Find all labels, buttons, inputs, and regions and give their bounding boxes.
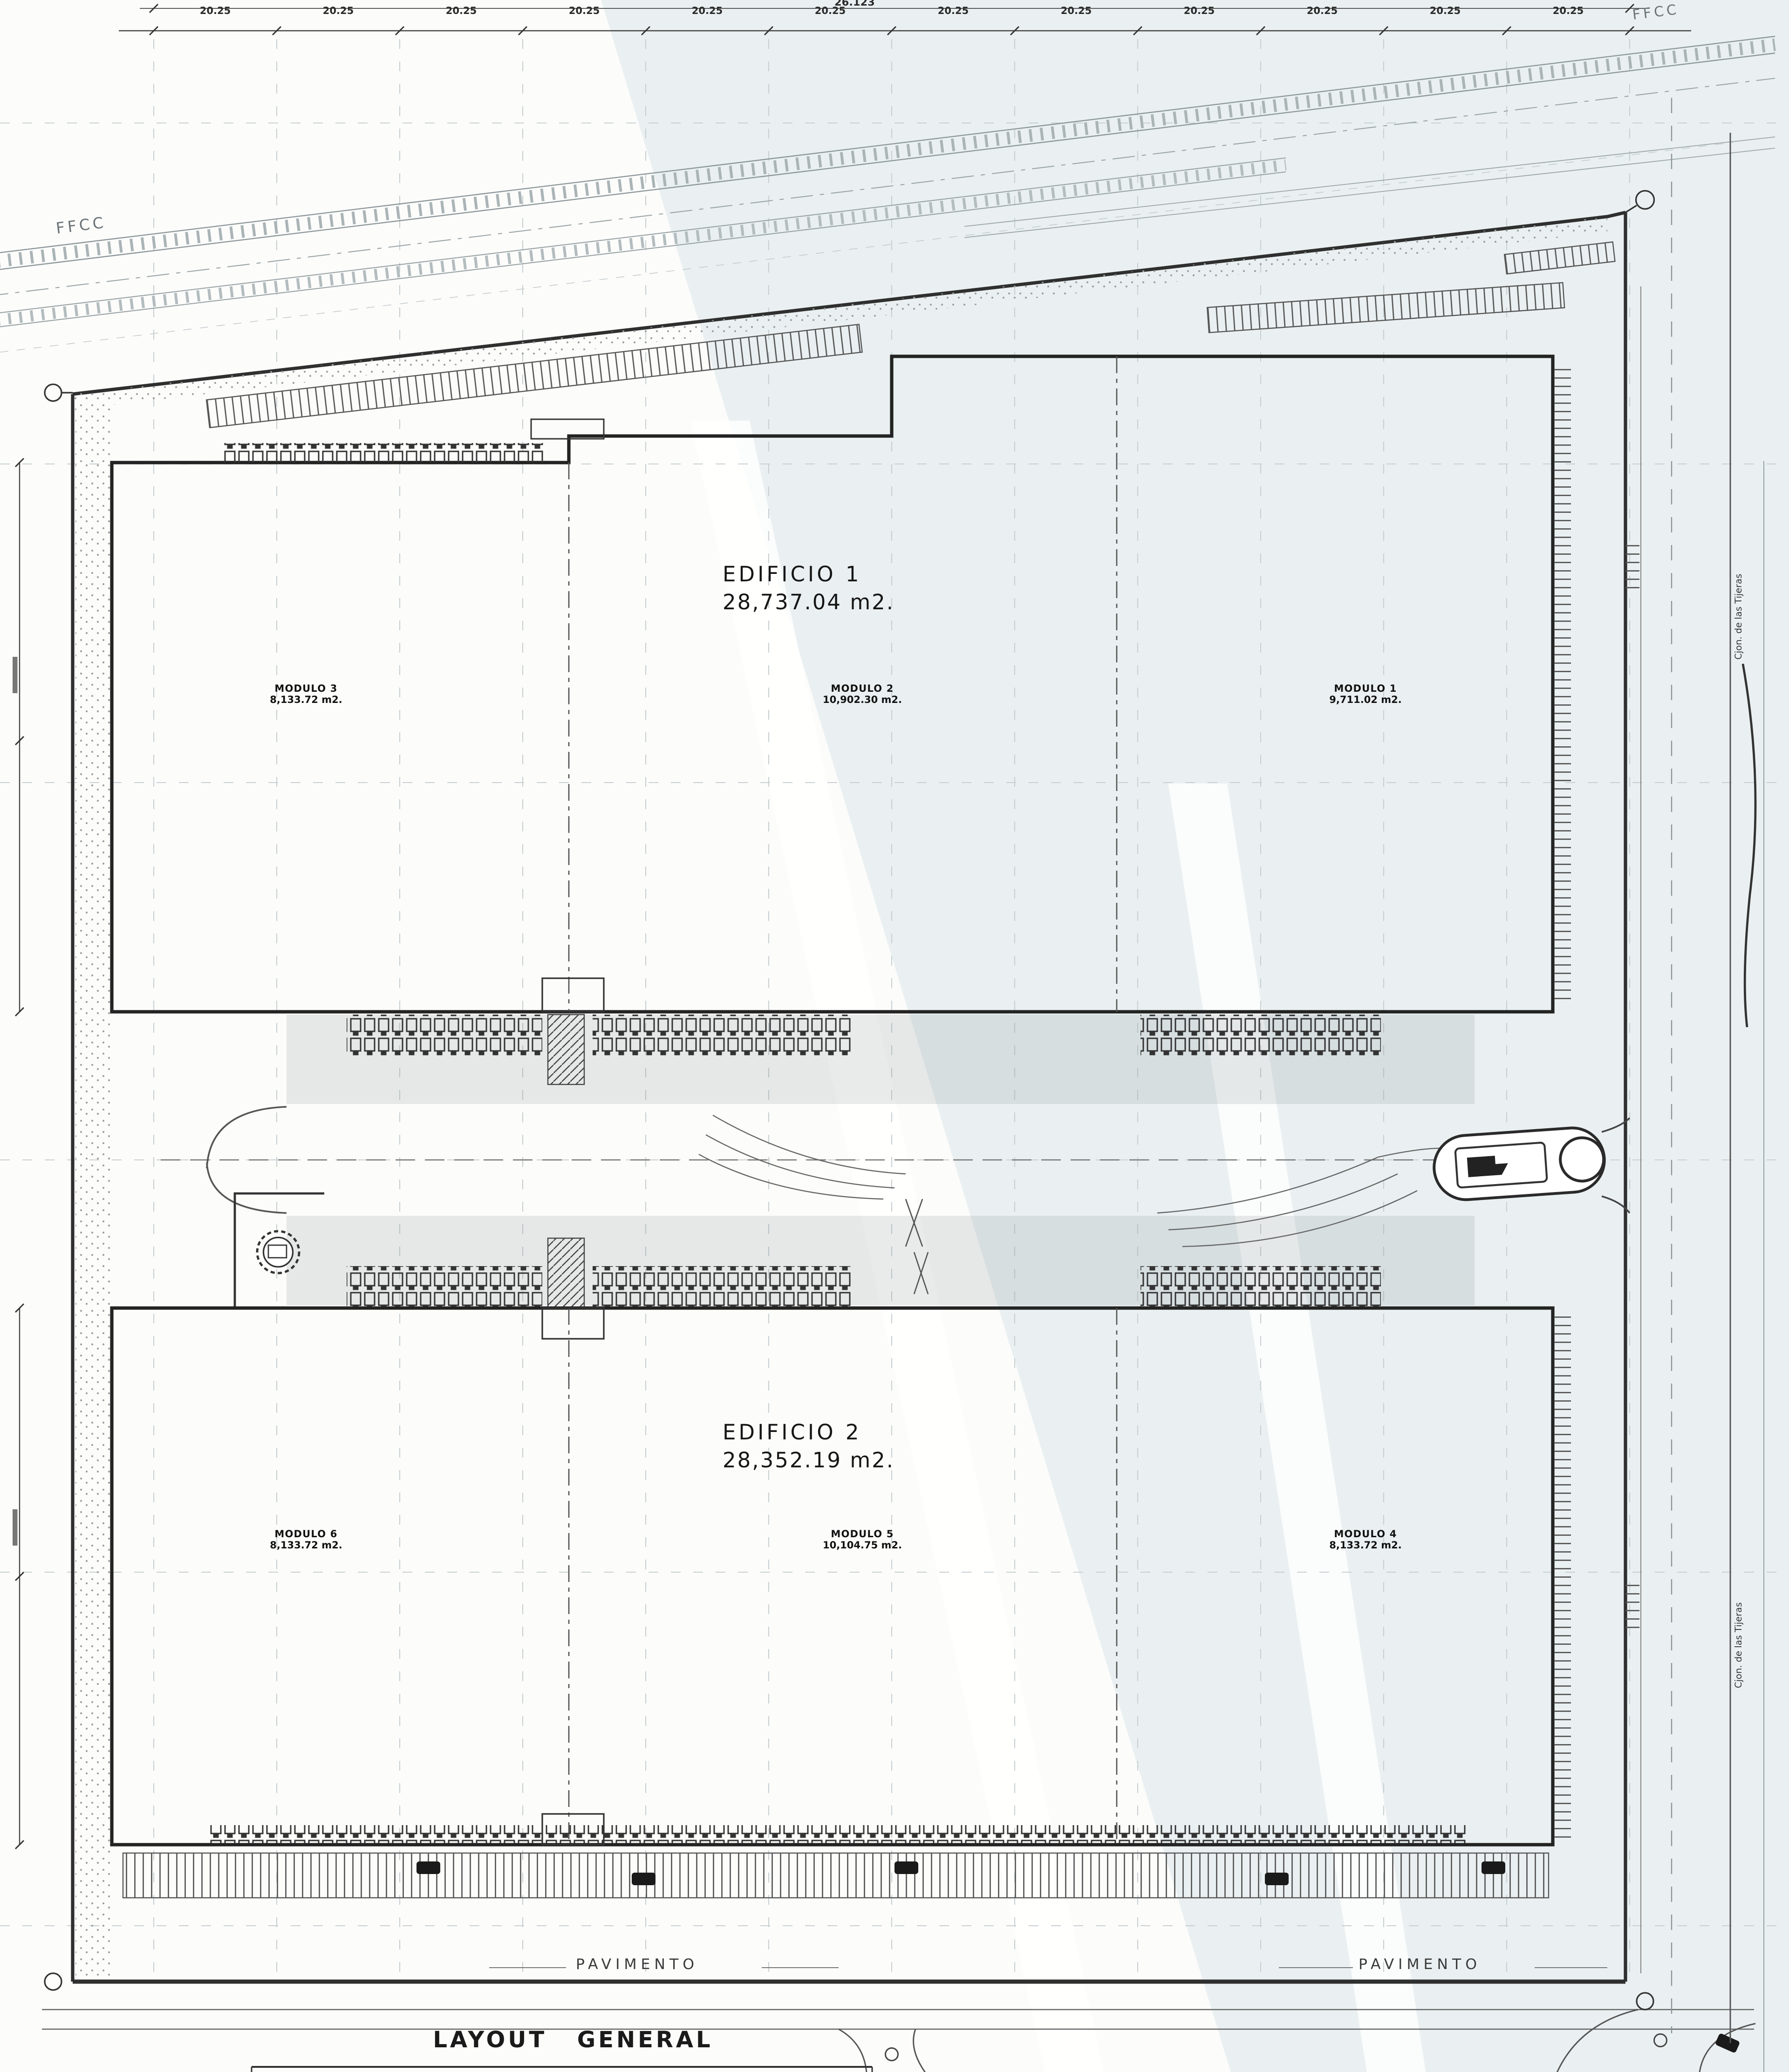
module-4-label: MODULO 4 8,133.72 m2.: [1247, 1529, 1484, 1551]
drawing-title: LAYOUT GENERAL: [391, 2026, 755, 2053]
title-block: [252, 2067, 872, 2072]
truck-court: [161, 1015, 1537, 1308]
pavement-label-left: PAVIMENTO: [576, 1956, 698, 1973]
module-3-label: MODULO 3 8,133.72 m2.: [187, 683, 425, 706]
module-6-label: MODULO 6 8,133.72 m2.: [187, 1529, 425, 1551]
east-road: [1625, 98, 1764, 2072]
bay-dimension-label: 20.25: [400, 6, 523, 17]
bay-dimension-label: 20.25: [1507, 6, 1630, 17]
building-area: 28,352.19 m2.: [723, 1448, 1058, 1473]
building-2-label: EDIFICIO 2 28,352.19 m2.: [723, 1420, 1058, 1473]
building-name: EDIFICIO 1: [723, 562, 1058, 587]
road-name-lower: Cjon. de las Tijeras: [1733, 1602, 1744, 1688]
bay-dimension-label: 20.25: [769, 6, 892, 17]
building-name: EDIFICIO 2: [723, 1420, 1058, 1445]
pavement-label-right: PAVIMENTO: [1359, 1956, 1481, 1973]
parking-strip-top: [206, 242, 1615, 428]
building-2-outline: [112, 1308, 1571, 1845]
bay-dimension-label: 20.25: [277, 6, 400, 17]
plan-area: 26.123 20.25 20.25 20.25 20.25 20.25 20.…: [0, 0, 1789, 2072]
bay-dimension-label: 20.25: [892, 6, 1015, 17]
road-name-upper: Cjon. de las Tijeras: [1733, 574, 1744, 660]
module-2-label: MODULO 2 10,902.30 m2.: [744, 683, 981, 706]
parking-strip-bottom: [123, 1853, 1549, 1898]
bay-dimension-row: 20.25 20.25 20.25 20.25 20.25 20.25 20.2…: [154, 6, 1630, 17]
bay-dimension-label: 20.25: [1138, 6, 1261, 17]
bay-dimension-label: 20.25: [1384, 6, 1507, 17]
bay-dimension-label: 20.25: [1015, 6, 1138, 17]
building-area: 28,737.04 m2.: [723, 590, 1058, 615]
bay-dimension-label: 20.25: [1261, 6, 1384, 17]
site-plan-sheet: 26.123 20.25 20.25 20.25 20.25 20.25 20.…: [0, 0, 1789, 2072]
bay-dimension-label: 20.25: [154, 6, 277, 17]
site-plan-linework: [0, 0, 1789, 2072]
module-5-label: MODULO 5 10,104.75 m2.: [744, 1529, 981, 1551]
module-1-label: MODULO 1 9,711.02 m2.: [1247, 683, 1484, 706]
left-dimension-line: [13, 458, 24, 1849]
bay-dimension-label: 20.25: [646, 6, 769, 17]
side-verge: [75, 397, 112, 1979]
roundabout-icon: [1432, 1126, 1607, 1202]
building-1-label: EDIFICIO 1 28,737.04 m2.: [723, 562, 1058, 615]
bay-dimension-label: 20.25: [523, 6, 646, 17]
